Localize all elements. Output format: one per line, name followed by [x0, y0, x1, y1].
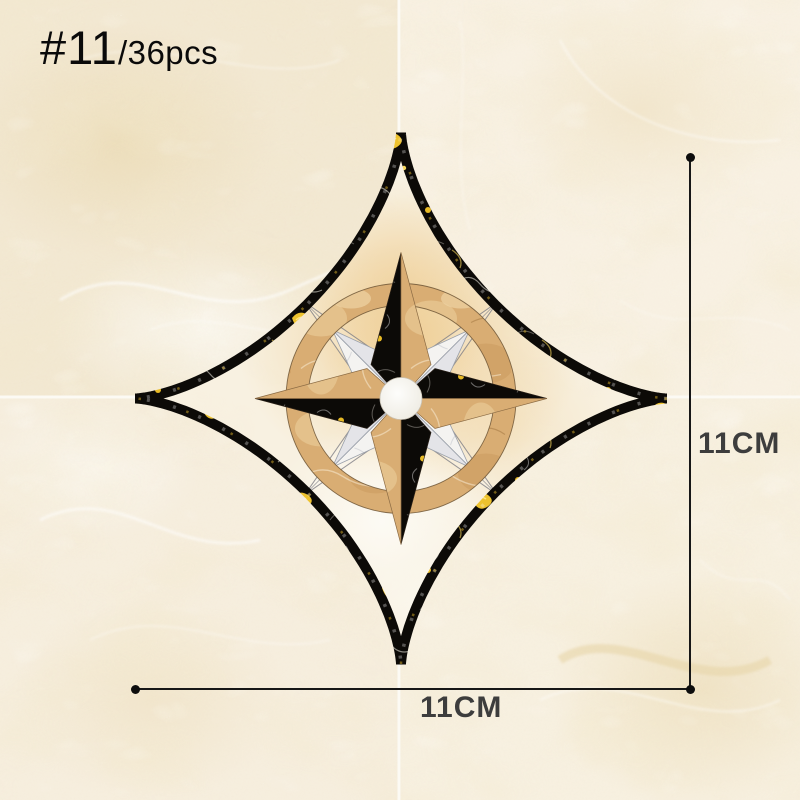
product-pack-count: /36pcs [118, 34, 218, 72]
tile-decal-product-image: 11CM 11CM #11/36pcs [0, 0, 800, 800]
width-dimension-line [135, 688, 691, 690]
product-label: #11/36pcs [40, 20, 218, 75]
measure-dot-left [131, 685, 140, 694]
product-number: #11 [40, 20, 118, 75]
width-dimension-label: 11CM [420, 691, 502, 725]
height-dimension-label: 11CM [698, 427, 780, 461]
compass-center-disc [380, 378, 422, 420]
measure-dot-corner [686, 685, 695, 694]
height-dimension-line [689, 157, 691, 689]
measure-dot-top [686, 153, 695, 162]
compass-star-decal [0, 0, 800, 800]
compass-rose [255, 253, 547, 545]
